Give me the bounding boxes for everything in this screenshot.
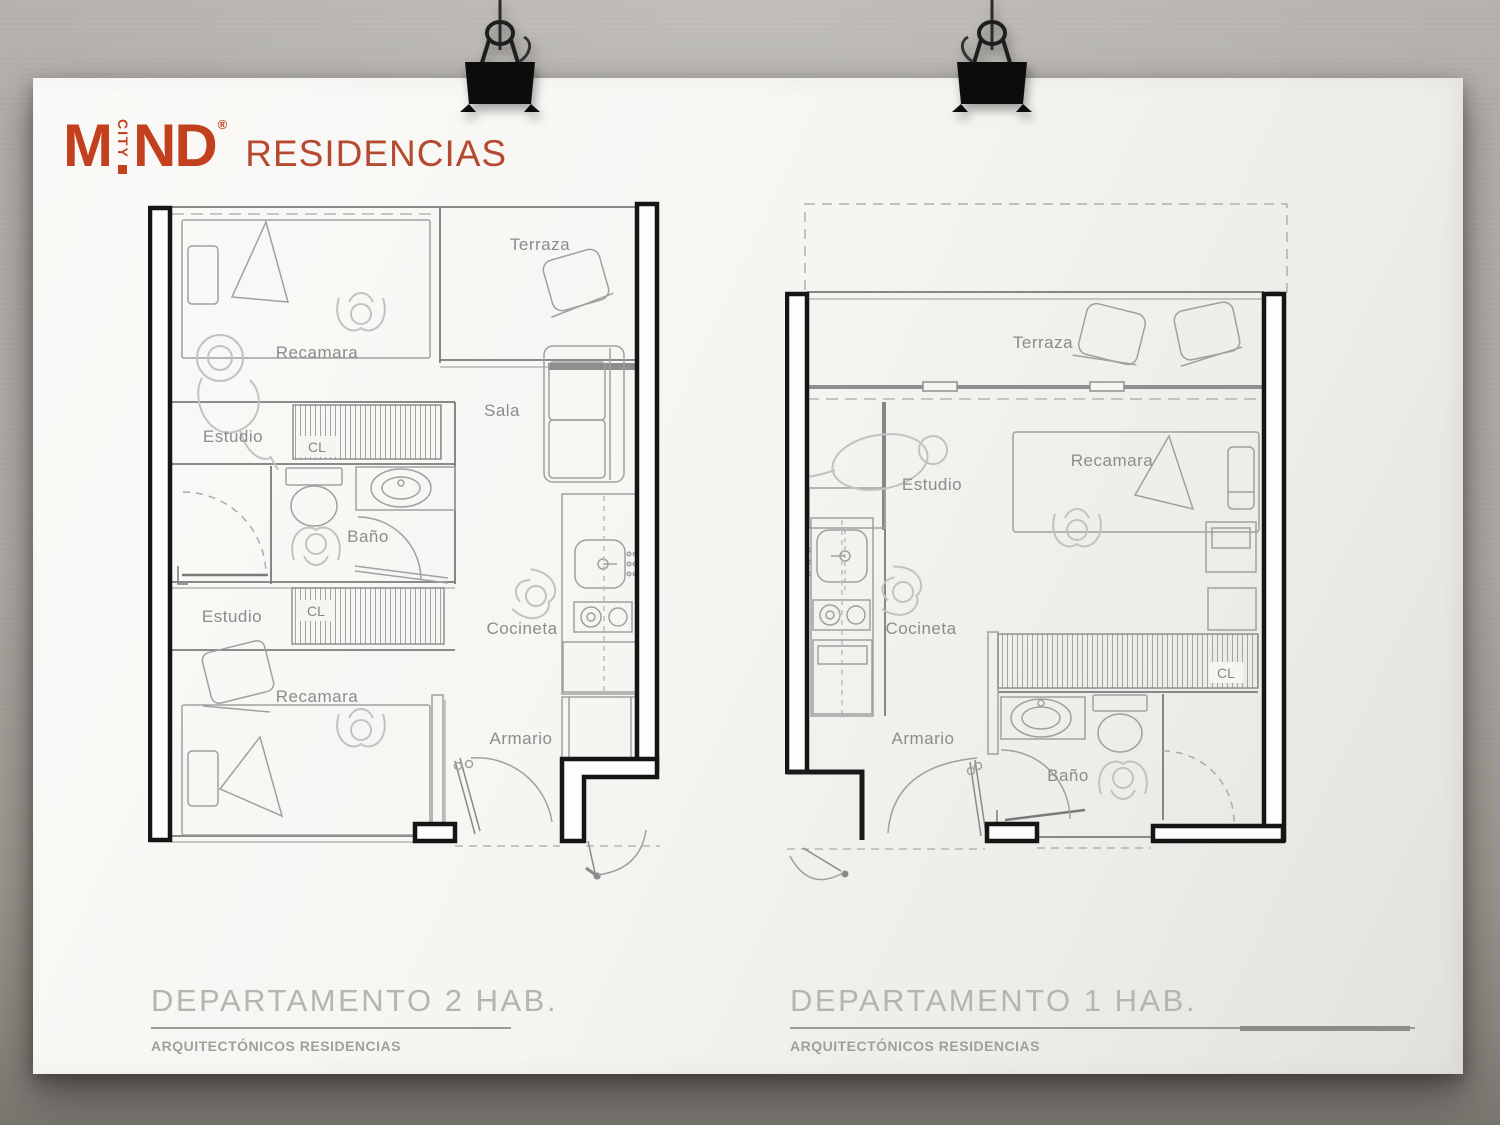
shower-door <box>355 566 448 583</box>
kitchen-sink <box>575 540 625 588</box>
toilet-tank <box>286 468 342 485</box>
brand-logo-mark: M CITY ND ® <box>63 116 225 176</box>
laptop <box>201 639 276 705</box>
bed-bottom <box>182 705 430 835</box>
wardrobe <box>432 695 443 825</box>
blanket-fold <box>220 737 282 816</box>
vanity <box>1001 697 1085 739</box>
bath-sink <box>371 469 431 507</box>
room-label-cl-top: CL <box>308 439 326 455</box>
terrace-chair <box>1073 301 1149 371</box>
terrace-chair <box>536 246 615 317</box>
room-label-recamara: Recamara <box>1071 451 1153 470</box>
exterior-door-swing <box>597 830 646 875</box>
logo-exclamation-dot-icon <box>118 165 127 174</box>
bath-sink <box>1011 699 1071 737</box>
exterior-door-leaf <box>803 848 841 871</box>
entry-door-swing <box>888 758 977 833</box>
partitions <box>787 204 1287 849</box>
plan-subtitle-2hab: ARQUITECTÓNICOS RESIDENCIAS <box>151 1038 811 1054</box>
stove <box>574 602 632 632</box>
floorplan-1hab-drawing: Terraza Estudio Recamara Cocineta CL Arm… <box>785 200 1295 925</box>
titleblock-1hab: DEPARTAMENTO 1 HAB. ARQUITECTÓNICOS RESI… <box>790 983 1450 1054</box>
toilet-tank <box>1093 695 1147 711</box>
logo-city-text: CITY <box>116 119 130 159</box>
room-label-estudio-bottom: Estudio <box>202 607 262 626</box>
title-rule <box>151 1027 511 1029</box>
logo-letters-nd: ND <box>133 116 216 176</box>
nightstand <box>1208 588 1256 630</box>
door-swing-dashed <box>1163 751 1234 822</box>
door-leaf-open <box>970 760 986 836</box>
floorplan-2hab-drawing: Terraza Recamara Estudio CL Sala Baño Es… <box>148 200 663 925</box>
toilet-bowl <box>291 486 337 526</box>
floorplan-2hab: Terraza Recamara Estudio CL Sala Baño Es… <box>148 200 663 925</box>
plan-subtitle-1hab: ARQUITECTÓNICOS RESIDENCIAS <box>790 1038 1450 1054</box>
toilet-bowl <box>1098 714 1142 752</box>
plan-title-1hab: DEPARTAMENTO 1 HAB. <box>790 983 1450 1019</box>
plan-title-2hab: DEPARTAMENTO 2 HAB. <box>151 983 811 1019</box>
terraza-threshold <box>548 363 635 370</box>
floorplan-1hab: Terraza Estudio Recamara Cocineta CL Arm… <box>785 200 1295 925</box>
room-label-cl-bottom: CL <box>307 603 325 619</box>
binder-clip-icon <box>937 0 1047 118</box>
logo-letter-m: M <box>63 116 111 176</box>
kitchen-counter <box>562 494 638 694</box>
room-label-sala: Sala <box>484 401 520 420</box>
people <box>790 427 1147 799</box>
walls <box>150 204 657 841</box>
room-label-bano: Baño <box>347 527 389 546</box>
poster: M CITY ND ® RESIDENCIAS <box>33 78 1463 1074</box>
room-label-estudio-top: Estudio <box>203 427 263 446</box>
scale-bar <box>1240 1026 1410 1031</box>
room-label-recamara-top: Recamara <box>276 343 358 362</box>
brand-suffix: RESIDENCIAS <box>245 133 507 175</box>
door-swing-dashed <box>183 492 266 575</box>
kitchen-cabinet <box>563 642 637 692</box>
room-label-terraza: Terraza <box>1013 333 1073 352</box>
blanket-fold <box>1135 436 1193 509</box>
terrace-chair <box>1170 300 1244 366</box>
blanket-fold <box>232 222 288 302</box>
room-label-recamara-bottom: Recamara <box>276 687 358 706</box>
room-label-estudio: Estudio <box>902 475 962 494</box>
registered-mark: ® <box>218 118 226 131</box>
room-label-cl: CL <box>1217 665 1235 681</box>
pillow <box>188 751 218 806</box>
terrace-projection-dashed <box>805 204 1287 292</box>
entry-door-swing <box>471 758 552 822</box>
room-label-cocineta: Cocineta <box>486 619 557 638</box>
pillow <box>188 246 218 304</box>
titleblock-2hab: DEPARTAMENTO 2 HAB. ARQUITECTÓNICOS RESI… <box>151 983 811 1054</box>
pillow <box>1228 447 1254 509</box>
room-label-bano: Baño <box>1047 766 1089 785</box>
bed <box>1013 432 1259 532</box>
table <box>562 697 638 763</box>
logo-city-column: CITY <box>116 119 130 176</box>
nightstand <box>1206 522 1256 572</box>
bed-top <box>182 220 430 358</box>
room-label-armario: Armario <box>489 729 552 748</box>
room-label-terraza: Terraza <box>510 235 570 254</box>
binder-clip-icon <box>445 0 555 118</box>
door-leaf <box>1005 810 1085 820</box>
room-label-cocineta: Cocineta <box>885 619 956 638</box>
room-label-armario: Armario <box>891 729 954 748</box>
brand-logo: M CITY ND ® RESIDENCIAS <box>63 116 507 176</box>
